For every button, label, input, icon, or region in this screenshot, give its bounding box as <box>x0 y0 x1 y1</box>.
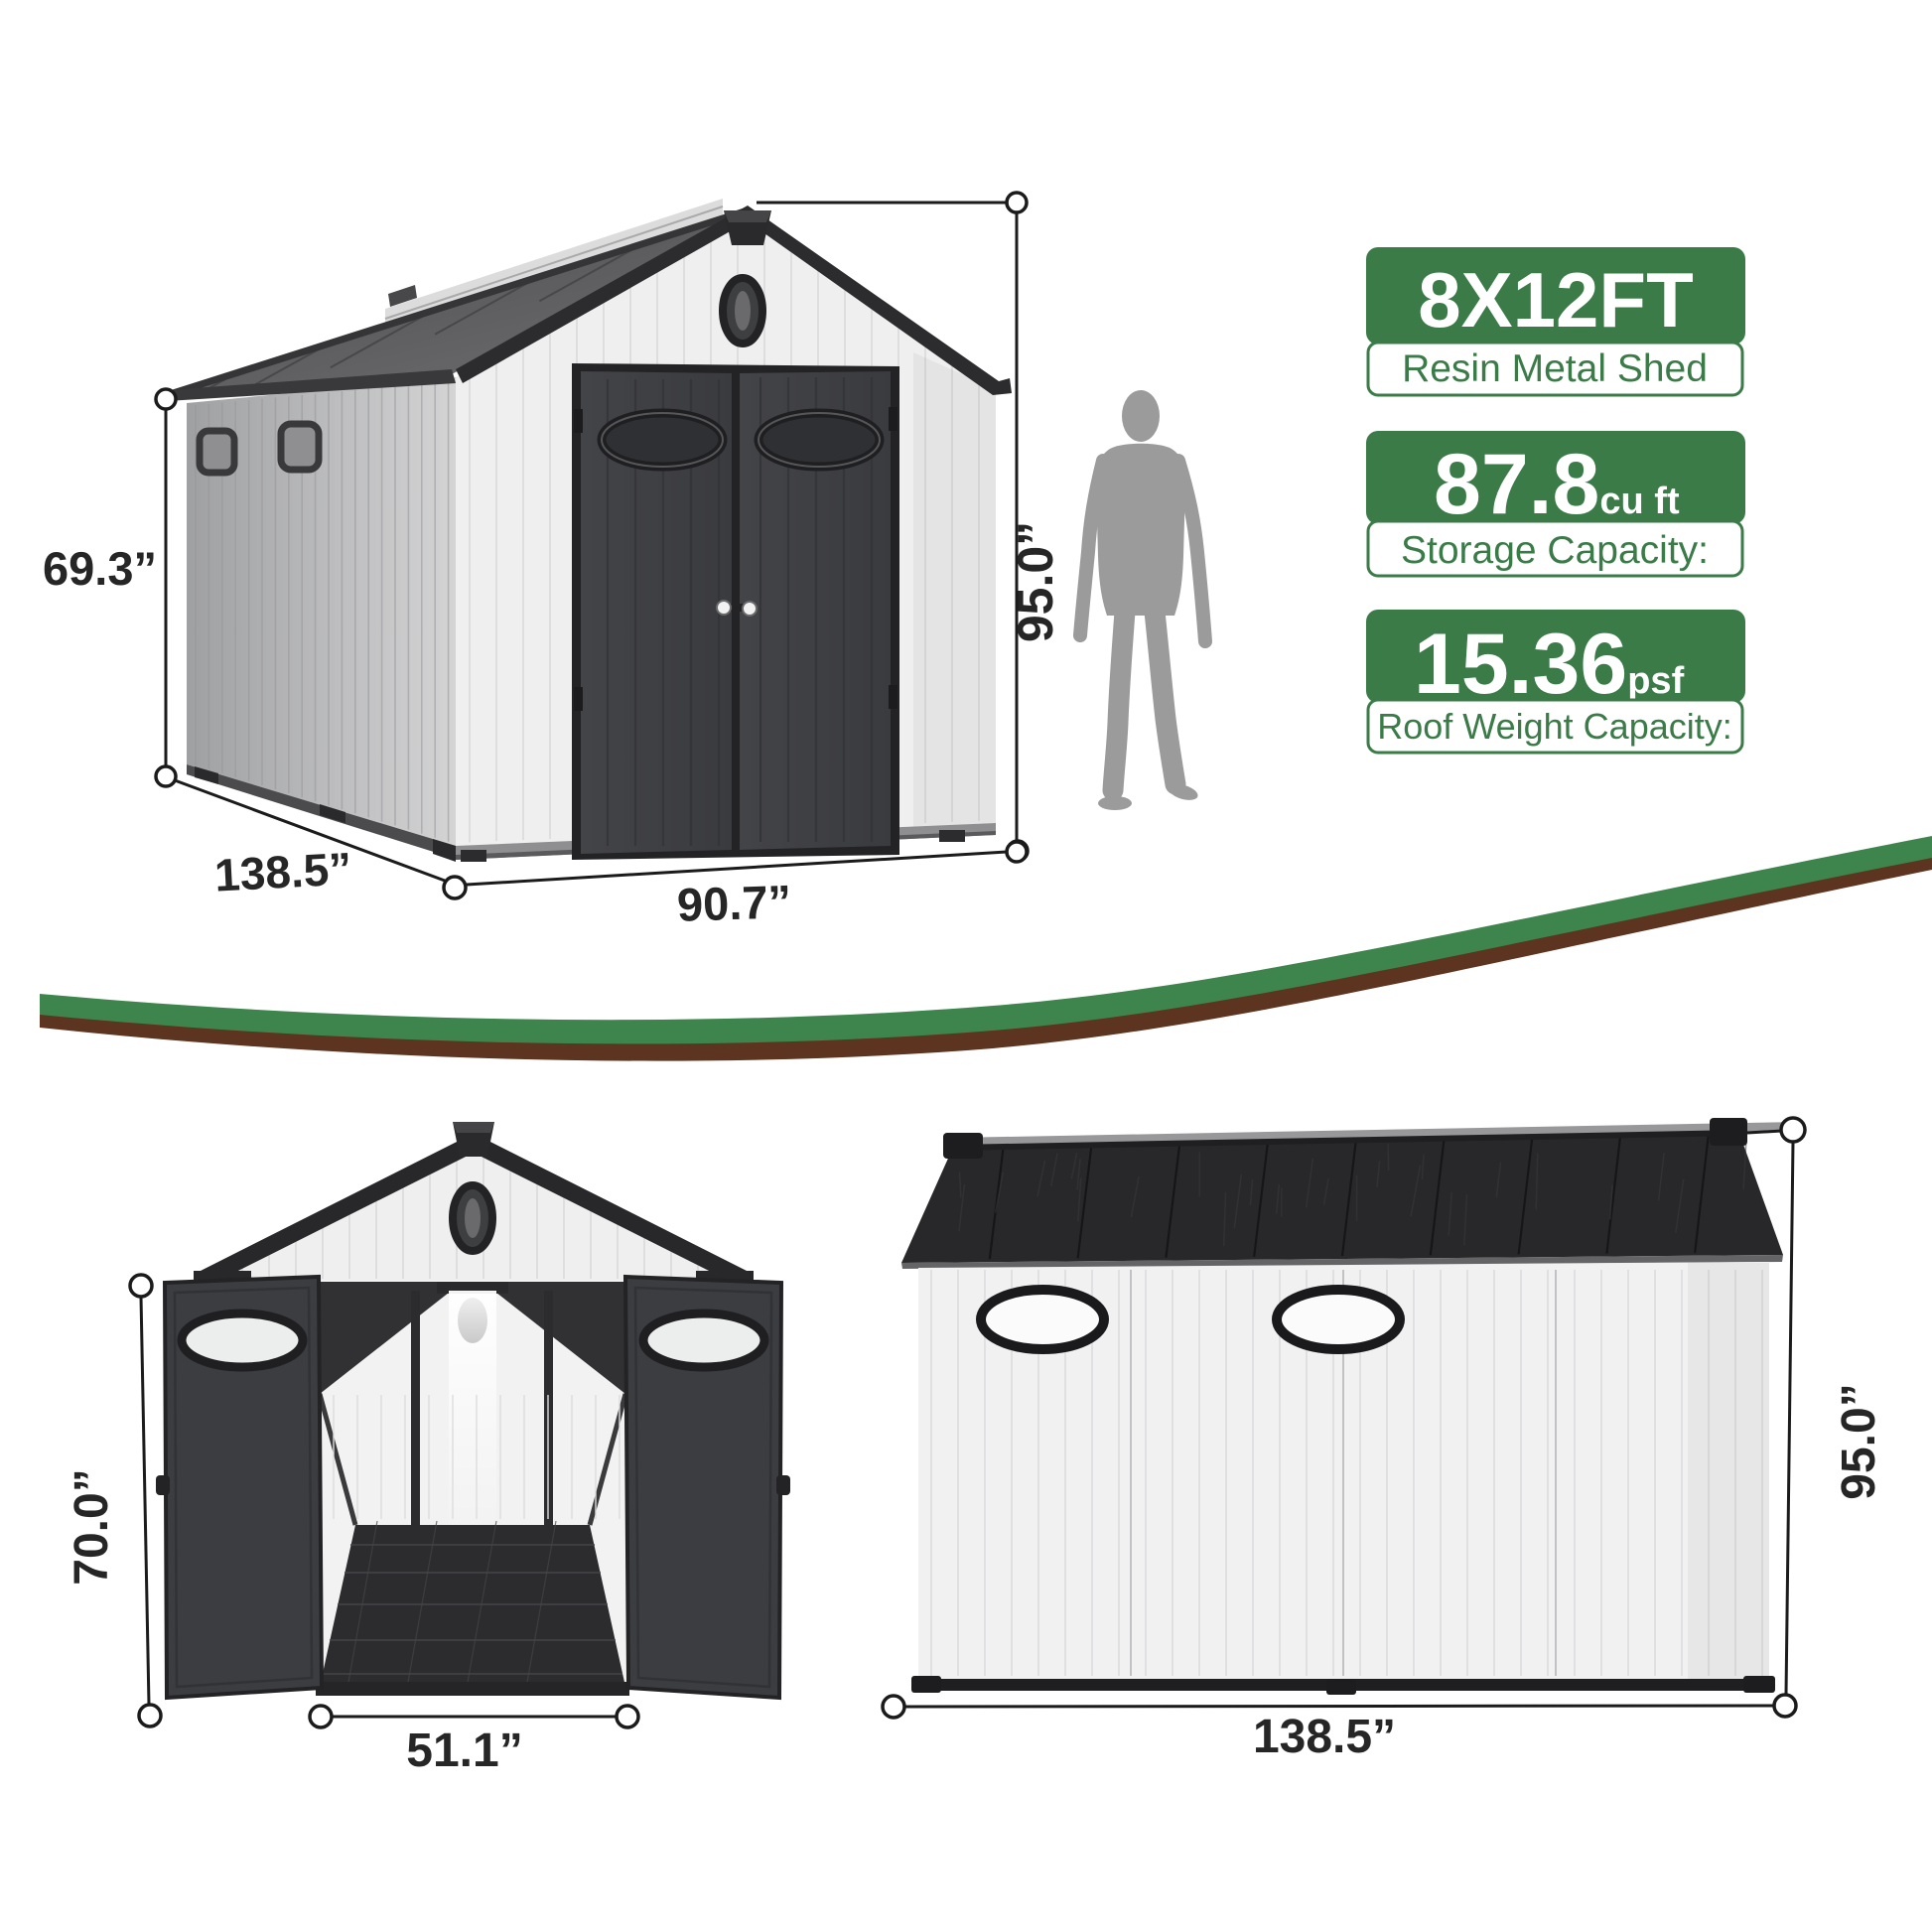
svg-text:Roof Weight Capacity:: Roof Weight Capacity: <box>1377 706 1732 747</box>
svg-text:8X12FT: 8X12FT <box>1418 256 1693 344</box>
svg-text:138.5”: 138.5” <box>213 842 353 900</box>
svg-text:Storage Capacity:: Storage Capacity: <box>1401 529 1709 572</box>
svg-text:95.0”: 95.0” <box>1833 1383 1885 1499</box>
svg-text:69.3”: 69.3” <box>43 542 157 595</box>
svg-text:70.0”: 70.0” <box>66 1468 118 1585</box>
svg-text:51.1”: 51.1” <box>406 1725 522 1777</box>
svg-text:95.0”: 95.0” <box>1008 521 1063 642</box>
svg-text:90.7”: 90.7” <box>676 875 792 931</box>
svg-text:138.5”: 138.5” <box>1253 1711 1396 1763</box>
svg-text:Resin Metal Shed: Resin Metal Shed <box>1402 347 1708 390</box>
